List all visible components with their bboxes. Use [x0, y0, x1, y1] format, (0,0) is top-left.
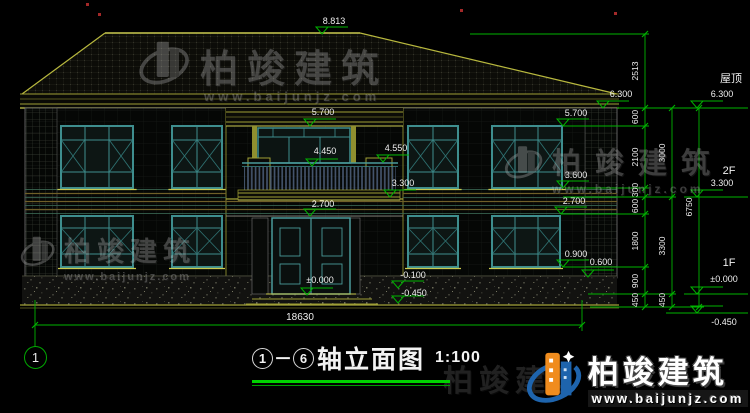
- baijun-logo: 柏竣建筑 www.baijunjz.com: [526, 345, 748, 409]
- axis-bubble-1: 1: [24, 346, 47, 369]
- sparkle-icon: [563, 351, 575, 363]
- dim-text: 1F: [723, 257, 736, 269]
- title-axis-start-bubble: 1: [252, 348, 273, 369]
- level-label: 3.300: [711, 178, 734, 188]
- level-label: 4.550: [385, 143, 408, 153]
- dim-text: 18630: [286, 312, 314, 323]
- logo-brand-text: 柏竣建筑: [588, 347, 748, 392]
- drawing-scale: 1:100: [435, 349, 481, 367]
- chain-outer-value: 6750: [684, 197, 694, 216]
- chain-inner-value: 450: [630, 293, 640, 307]
- window-2f-left-small: [169, 126, 225, 190]
- chain-middle-value: 450: [657, 293, 667, 307]
- level-label: ±0.000: [710, 274, 737, 284]
- level-label: 2.700: [563, 196, 586, 206]
- window-2f-left-large: [58, 126, 136, 190]
- level-marker-triangle: [691, 190, 703, 197]
- chain-inner-value: 300: [630, 183, 640, 197]
- title-separator: －: [274, 345, 292, 371]
- entry-porch: [246, 218, 378, 304]
- logo-url-text: www.baijunjz.com: [588, 390, 748, 407]
- level-label: 0.900: [565, 249, 588, 259]
- level-marker-triangle: [691, 101, 703, 108]
- level-label: 8.813: [323, 16, 346, 26]
- chain-inner-value: 600: [630, 110, 640, 124]
- dim-text: 屋顶: [720, 72, 742, 85]
- chain-inner-value: 1800: [630, 231, 640, 250]
- level-label: 5.700: [565, 108, 588, 118]
- window-1f-right-small: [405, 216, 461, 269]
- chain-middle-value: 3000: [657, 143, 667, 162]
- chain-inner-value: 600: [630, 199, 640, 213]
- level-marker-triangle: [691, 287, 703, 294]
- chain-inner-value: 2513: [630, 61, 640, 80]
- window-2f-right-large: [489, 126, 565, 190]
- level-label: -0.450: [401, 288, 427, 298]
- level-label: 3.300: [392, 178, 415, 188]
- dim-text: 2F: [723, 165, 736, 177]
- level-label: 5.700: [312, 107, 335, 117]
- level-label: 4.450: [314, 146, 337, 156]
- red-point-marks: [86, 3, 617, 16]
- chain-inner-value: 2100: [630, 147, 640, 166]
- window-1f-right-large: [489, 216, 563, 269]
- drawing-title: 轴立面图: [317, 340, 425, 376]
- hip-roof: [20, 33, 619, 108]
- window-1f-left-small: [169, 216, 225, 269]
- baijun-logo-icon: [526, 345, 584, 409]
- level-label: -0.100: [400, 270, 426, 280]
- title-axis-end-bubble: 6: [293, 348, 314, 369]
- window-1f-left-large: [58, 216, 136, 269]
- porch-pier-left: [252, 218, 268, 294]
- level-label: 6.300: [711, 89, 734, 99]
- balcony-railing-bars: [244, 167, 396, 190]
- level-label: 3.600: [565, 170, 588, 180]
- chain-middle-value: 3300: [657, 236, 667, 255]
- level-label: -0.450: [711, 317, 737, 327]
- level-label: ±0.000: [306, 275, 333, 285]
- title-underline-thin: [252, 385, 450, 386]
- drawing-title-block: 1 － 6 轴立面图 1:100: [252, 340, 481, 386]
- chain-inner-value: 900: [630, 274, 640, 288]
- level-label: 2.700: [312, 199, 335, 209]
- cad-elevation-screenshot: 8.8136.3005.7005.7004.4504.5503.3002.700…: [0, 0, 750, 413]
- level-label: 0.600: [590, 257, 613, 267]
- title-underline: [252, 380, 450, 383]
- level-label: 6.300: [610, 89, 633, 99]
